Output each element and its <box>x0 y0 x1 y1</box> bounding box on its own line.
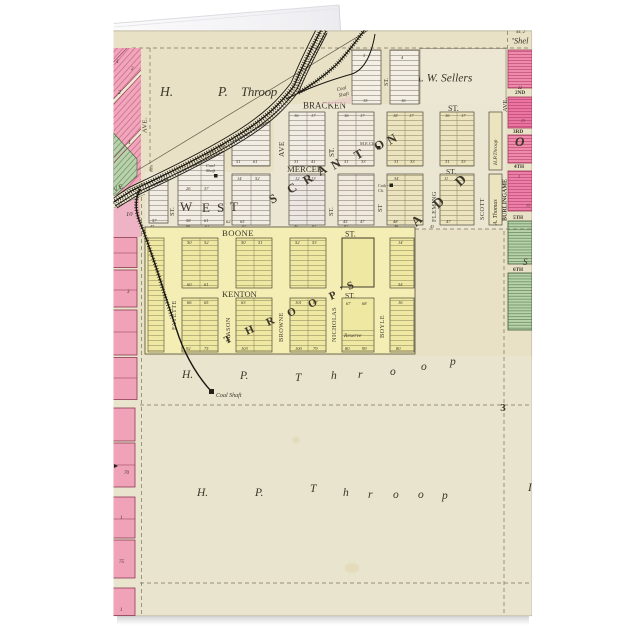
svg-text:68: 68 <box>362 301 367 306</box>
svg-text:50: 50 <box>241 240 246 245</box>
svg-text:60: 60 <box>187 282 192 287</box>
svg-text:3: 3 <box>500 402 506 414</box>
svg-text:o: o <box>390 366 396 378</box>
svg-text:34: 34 <box>394 176 399 181</box>
svg-text:79: 79 <box>313 346 318 351</box>
svg-text:52: 52 <box>295 240 300 245</box>
svg-text:51: 51 <box>258 240 263 245</box>
svg-text:62: 62 <box>226 219 231 224</box>
svg-text:o: o <box>418 489 424 501</box>
svg-text:61: 61 <box>253 159 258 164</box>
svg-text:22: 22 <box>518 85 522 90</box>
svg-text:p: p <box>449 356 456 368</box>
svg-text:17: 17 <box>311 113 316 118</box>
svg-text:Ch.: Ch. <box>378 188 384 193</box>
svg-text:A. W. Sellers: A. W. Sellers <box>413 73 473 85</box>
svg-text:11: 11 <box>444 176 448 181</box>
svg-text:r: r <box>368 489 373 501</box>
svg-text:58: 58 <box>186 218 191 223</box>
svg-text:P.: P. <box>254 487 263 499</box>
svg-text:1: 1 <box>518 174 520 179</box>
svg-text:ST.: ST. <box>328 147 336 157</box>
svg-text:o: o <box>393 489 399 501</box>
svg-text:80: 80 <box>345 346 350 351</box>
svg-text:16: 16 <box>344 113 349 118</box>
svg-text:4TH: 4TH <box>514 164 524 170</box>
svg-text:70: 70 <box>124 471 130 476</box>
svg-text:h: h <box>331 370 337 382</box>
svg-text:BROWNE: BROWNE <box>278 312 285 342</box>
svg-text:16: 16 <box>398 300 403 305</box>
svg-text:80: 80 <box>396 346 401 351</box>
svg-text:54: 54 <box>398 282 403 287</box>
svg-text:H.P.Throop: H.P.Throop <box>493 139 499 166</box>
svg-text:ST: ST <box>377 204 384 212</box>
svg-text:6TH: 6TH <box>513 267 523 273</box>
svg-text:75: 75 <box>204 346 209 351</box>
svg-text:16: 16 <box>445 113 450 118</box>
svg-text:p: p <box>441 490 448 502</box>
svg-text:16: 16 <box>401 98 406 103</box>
svg-text:ST.: ST. <box>328 207 335 216</box>
svg-text:r: r <box>358 369 363 381</box>
svg-text:ST.: ST. <box>384 77 390 86</box>
svg-text:BOYLE: BOYLE <box>379 315 386 338</box>
svg-text:1: 1 <box>120 608 123 613</box>
svg-text:5TH: 5TH <box>513 215 523 221</box>
svg-text:S: S <box>217 200 224 215</box>
svg-text:57: 57 <box>152 218 157 223</box>
svg-text:37: 37 <box>204 186 209 191</box>
svg-text:16: 16 <box>294 113 299 118</box>
svg-text:65: 65 <box>204 300 209 305</box>
svg-text:101: 101 <box>295 300 302 305</box>
svg-text:14: 14 <box>237 176 242 181</box>
svg-text:BURLINGAME: BURLINGAME <box>503 179 509 221</box>
svg-text:26: 26 <box>186 186 191 191</box>
svg-text:10: 10 <box>126 211 133 218</box>
svg-text:52: 52 <box>204 240 209 245</box>
svg-text:67: 67 <box>346 301 351 306</box>
svg-text:31: 31 <box>344 159 349 164</box>
svg-text:43: 43 <box>430 224 434 229</box>
svg-text:Shaft: Shaft <box>206 168 216 173</box>
svg-text:Coal Shaft: Coal Shaft <box>216 392 242 399</box>
svg-text:NICHOLAS: NICHOLAS <box>331 307 338 342</box>
svg-text:33: 33 <box>461 159 466 164</box>
svg-text:14: 14 <box>398 240 403 245</box>
svg-text:2: 2 <box>118 90 121 96</box>
svg-text:o: o <box>421 361 427 373</box>
svg-text:h: h <box>343 487 349 499</box>
svg-text:47: 47 <box>446 219 451 224</box>
svg-text:47: 47 <box>360 219 365 224</box>
svg-text:31: 31 <box>445 159 450 164</box>
svg-text:12: 12 <box>295 176 300 181</box>
svg-text:92: 92 <box>186 346 191 351</box>
svg-text:61: 61 <box>204 282 209 287</box>
svg-text:T: T <box>230 199 238 214</box>
svg-text:99: 99 <box>362 346 367 351</box>
svg-text:2ND: 2ND <box>515 90 525 96</box>
svg-text:18: 18 <box>393 113 398 118</box>
svg-text:ST.: ST. <box>169 207 176 216</box>
svg-text:P.: P. <box>217 84 228 99</box>
svg-text:61: 61 <box>204 218 209 223</box>
svg-text:AVE.: AVE. <box>142 117 149 133</box>
svg-text:100: 100 <box>295 346 303 351</box>
svg-text:66: 66 <box>187 300 192 305</box>
svg-text:KENTON: KENTON <box>222 289 257 299</box>
svg-text:13: 13 <box>526 203 530 208</box>
svg-text:17: 17 <box>409 113 414 118</box>
svg-text:52: 52 <box>255 176 260 181</box>
svg-text:A. Thomas: A. Thomas <box>493 199 499 226</box>
svg-text:AVE.: AVE. <box>502 97 509 112</box>
svg-text:103: 103 <box>241 346 249 351</box>
svg-text:S: S <box>523 257 528 267</box>
svg-text:O: O <box>515 134 525 149</box>
svg-text:H.: H. <box>159 84 173 99</box>
svg-text:Throop: Throop <box>241 84 278 99</box>
svg-text:53: 53 <box>312 240 317 245</box>
svg-text:ST.: ST. <box>345 230 356 239</box>
svg-text:P.: P. <box>239 370 248 382</box>
svg-text:1: 1 <box>128 140 131 146</box>
svg-text:31: 31 <box>394 159 399 164</box>
svg-text:W: W <box>180 199 193 214</box>
svg-text:1: 1 <box>120 516 123 521</box>
svg-text:H.: H. <box>181 369 193 381</box>
svg-text:SCOTT: SCOTT <box>479 198 486 220</box>
svg-text:AVE: AVE <box>277 141 286 157</box>
svg-text:75: 75 <box>119 560 125 565</box>
svg-text:13: 13 <box>521 118 525 123</box>
svg-text:Reserve: Reserve <box>343 333 362 339</box>
svg-text:H.: H. <box>196 487 208 499</box>
svg-text:33: 33 <box>410 159 415 164</box>
svg-text:50: 50 <box>187 240 192 245</box>
svg-text:51: 51 <box>236 159 241 164</box>
svg-text:15: 15 <box>363 98 368 103</box>
svg-text:E: E <box>202 200 210 215</box>
svg-text:17: 17 <box>360 113 365 118</box>
svg-text:BOONE: BOONE <box>222 228 254 238</box>
svg-text:17: 17 <box>461 113 466 118</box>
svg-text:63: 63 <box>241 300 246 305</box>
svg-text:’Shel: ’Shel <box>511 36 529 46</box>
